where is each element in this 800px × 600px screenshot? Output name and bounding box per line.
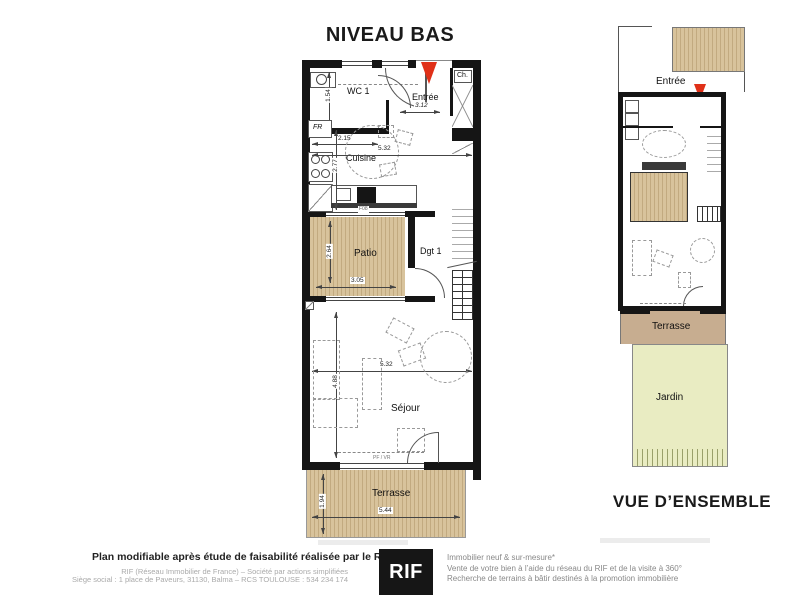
mini-fixture bbox=[625, 113, 639, 126]
wall-segment bbox=[408, 60, 416, 68]
mini-wall bbox=[623, 126, 673, 128]
patio-window-bottom bbox=[326, 297, 405, 301]
dim-line bbox=[316, 287, 396, 288]
chair bbox=[378, 125, 394, 138]
wall-segment bbox=[424, 462, 481, 470]
stairs-upper-dashed bbox=[452, 203, 473, 263]
scan-artifact bbox=[600, 538, 710, 543]
burner-icon bbox=[321, 155, 330, 164]
stairs-rail bbox=[462, 270, 463, 320]
dim-terrasse-height: 1.94 bbox=[319, 494, 326, 509]
dim-entree-width: 3.12 bbox=[414, 102, 429, 109]
mini-table bbox=[642, 130, 686, 158]
room-label-patio: Patio bbox=[354, 248, 377, 259]
burner-icon bbox=[311, 169, 320, 178]
mini-bay-dashes bbox=[640, 303, 686, 304]
furniture bbox=[385, 317, 414, 343]
mini-furniture bbox=[678, 272, 691, 288]
furniture bbox=[362, 358, 382, 410]
room-label-wc: WC 1 bbox=[347, 86, 370, 96]
mini-sofa bbox=[632, 240, 652, 276]
overview-title: VUE D’ENSEMBLE bbox=[602, 492, 782, 512]
footer-service-line: Recherche de terrains à bâtir destinés à… bbox=[447, 574, 682, 585]
coat-closet bbox=[452, 128, 473, 141]
room-label-entree: Entrée bbox=[412, 92, 439, 102]
mini-fixture bbox=[625, 126, 639, 140]
vent-symbol-line bbox=[305, 301, 314, 310]
room-label-dgt: Dgt 1 bbox=[420, 246, 442, 256]
closet-cross-icon bbox=[452, 85, 473, 127]
overview-entree-label: Entrée bbox=[656, 76, 685, 87]
closet-label: Ch. bbox=[457, 72, 468, 79]
room-label-sejour: Séjour bbox=[391, 403, 420, 414]
terrace-door-leaf bbox=[438, 432, 439, 463]
dim-line bbox=[312, 517, 460, 518]
dim-line bbox=[400, 112, 440, 113]
sink-icon bbox=[336, 188, 351, 201]
bay-dashes bbox=[338, 452, 424, 453]
wall-dgt bbox=[408, 217, 415, 268]
bay-label: PF / VR bbox=[372, 455, 392, 462]
wall-right bbox=[473, 60, 481, 470]
rif-logo: RIF bbox=[379, 549, 433, 595]
sofa bbox=[313, 340, 340, 400]
dining-table bbox=[420, 331, 472, 383]
scan-artifact bbox=[318, 540, 408, 545]
footer-bold-line: Plan modifiable après étude de faisabili… bbox=[92, 551, 391, 563]
footer-service-line: Immobilier neuf & sur-mesure* bbox=[447, 553, 682, 564]
dim-patio-width: 3.05 bbox=[350, 277, 365, 284]
dim-cuisine-width: 5.32 bbox=[377, 145, 392, 152]
sofa bbox=[313, 398, 358, 428]
mini-dining-table bbox=[690, 238, 715, 263]
courtyard-wall bbox=[618, 26, 619, 92]
overview-terrace-wall bbox=[620, 311, 650, 314]
window bbox=[342, 61, 372, 66]
wall-segment bbox=[372, 60, 382, 68]
dishwasher-icon bbox=[308, 184, 333, 212]
toilet-bowl-icon bbox=[316, 74, 327, 85]
main-plan-title: NIVEAU BAS bbox=[300, 24, 480, 47]
burner-icon bbox=[321, 169, 330, 178]
dim-patio-height: 2.64 bbox=[326, 244, 333, 259]
overview-jardin-label: Jardin bbox=[656, 392, 683, 403]
dim-terrasse-width: 5.44 bbox=[378, 507, 393, 514]
footer-legal: RIF (Réseau Immobilier de France) – Soci… bbox=[70, 568, 348, 584]
garden-grass-hatch bbox=[633, 449, 727, 466]
overview-terrasse-label: Terrasse bbox=[652, 321, 690, 332]
wall-stub bbox=[473, 470, 481, 480]
patio-window-label: F08 bbox=[358, 206, 369, 213]
footer-legal-line2: Siège social : 1 place de Paveurs, 31130… bbox=[70, 576, 348, 584]
mini-counter bbox=[642, 162, 686, 170]
mini-stairs-dashed bbox=[707, 130, 721, 174]
footer-service-line: Vente de votre bien à l’aide du réseau d… bbox=[447, 564, 682, 575]
floor-plan-page: NIVEAU BAS VUE D’ENSEMBLE WC 1 1.54 2.15… bbox=[0, 0, 800, 600]
footer-services: Immobilier neuf & sur-mesure* Vente de v… bbox=[447, 553, 682, 585]
dgt-door-arc bbox=[415, 268, 445, 298]
mini-stairs bbox=[697, 206, 721, 222]
entrance-arrow-icon bbox=[421, 62, 437, 84]
chair bbox=[379, 162, 397, 178]
courtyard-wall bbox=[618, 26, 652, 27]
mini-fixture bbox=[625, 100, 639, 113]
mini-wall bbox=[700, 126, 721, 128]
counter-edge bbox=[331, 203, 417, 208]
mini-patio bbox=[630, 172, 688, 222]
overview-deck bbox=[672, 27, 745, 72]
dim-wc-height: 1.54 bbox=[325, 88, 332, 103]
fridge-label: FR bbox=[313, 124, 322, 131]
overview-terrace-wall bbox=[700, 311, 726, 314]
room-label-terrasse: Terrasse bbox=[372, 488, 410, 499]
window bbox=[382, 61, 408, 66]
wall-segment bbox=[302, 462, 340, 470]
dim-cuisine-height: 2.77 bbox=[332, 158, 339, 173]
bay-window bbox=[340, 463, 424, 469]
terrace-deck bbox=[306, 470, 466, 538]
